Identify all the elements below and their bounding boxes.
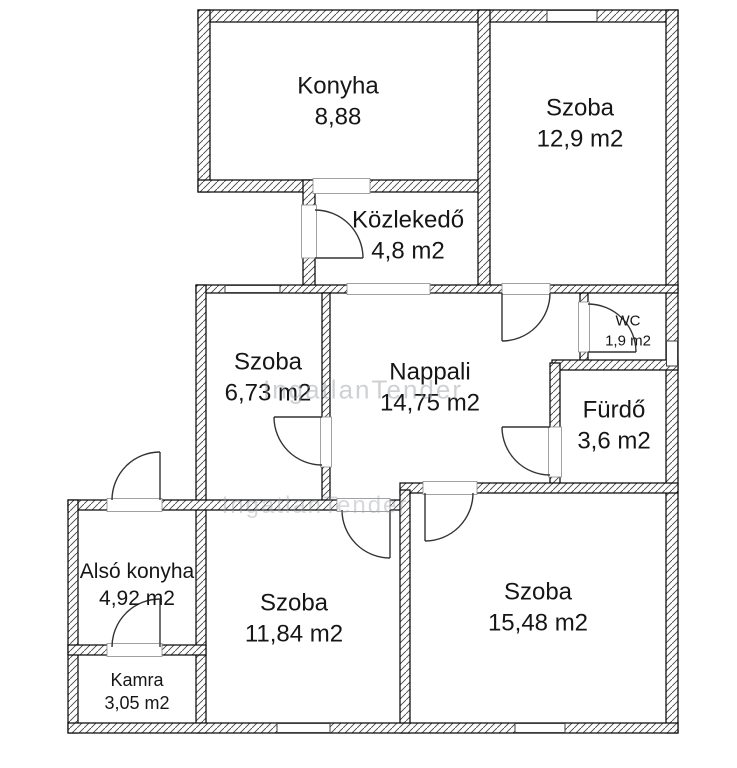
room-name: WC (605, 312, 651, 332)
room-area: 1,9 m2 (605, 331, 651, 351)
room-name: Közlekedő (352, 205, 464, 236)
opening-szoba1548-door (423, 482, 477, 495)
window-szoba1184-bottom (277, 724, 330, 733)
room-label-wc: WC 1,9 m2 (605, 312, 651, 351)
opening-kozlekedo-nappali (347, 284, 430, 295)
room-area: 3,6 m2 (577, 426, 650, 457)
wall-outer-bottom (68, 723, 678, 733)
door-arc-szoba1184 (342, 510, 390, 558)
door-arc-furdo (502, 427, 550, 475)
room-name: Szoba (225, 347, 312, 378)
room-name: Szoba (488, 577, 588, 608)
wall-szoba1184-szoba1548-divider (400, 490, 410, 733)
room-area: 6,73 m2 (225, 378, 312, 409)
window-wc-right (667, 341, 678, 366)
opening-furdo-door (549, 427, 562, 477)
wall-szoba673-nappali-divider (322, 293, 330, 508)
opening-konyha-kozlekedo (313, 179, 370, 194)
room-area: 12,9 m2 (537, 124, 624, 155)
wall-konyha-szoba129-divider (478, 10, 490, 293)
wall-outer-left-lower (68, 500, 78, 733)
room-area: 8,88 (297, 102, 378, 133)
wall-outer-top (198, 10, 678, 22)
wall-outer-left-upper (198, 10, 210, 192)
room-label-kozlekedo: Közlekedő 4,8 m2 (352, 205, 464, 266)
room-name: Alsó konyha (80, 559, 194, 586)
room-label-also-konyha: Alsó konyha 4,92 m2 (80, 559, 194, 613)
room-label-szoba-129: Szoba 12,9 m2 (537, 93, 624, 154)
room-area: 15,48 m2 (488, 608, 588, 639)
room-area: 11,84 m2 (245, 619, 343, 650)
door-arc-szoba673 (274, 417, 322, 465)
room-name: Fürdő (577, 395, 650, 426)
room-area: 4,92 m2 (80, 586, 194, 613)
room-name: Szoba (245, 588, 343, 619)
room-label-szoba-1184: Szoba 11,84 m2 (245, 588, 343, 649)
door-arc-szoba1548 (425, 493, 473, 541)
opening-szoba1184-door (337, 499, 390, 512)
door-arc-szoba129 (502, 293, 550, 341)
opening-szoba673-door (321, 417, 332, 467)
wall-outer-right (666, 10, 678, 733)
opening-wc-door (579, 302, 590, 352)
room-name: Konyha (297, 71, 378, 102)
room-name: Nappali (380, 357, 480, 388)
opening-kamra-door (107, 644, 162, 657)
room-label-furdo: Fürdő 3,6 m2 (577, 395, 650, 456)
room-label-szoba-1548: Szoba 15,48 m2 (488, 577, 588, 638)
room-area: 4,8 m2 (352, 236, 464, 267)
floor-plan: Konyha 8,88 Szoba 12,9 m2 Közlekedő 4,8 … (0, 0, 737, 768)
room-label-szoba-673: Szoba 6,73 m2 (225, 347, 312, 408)
door-arc-alsokonyha (112, 452, 160, 500)
room-name: Kamra (104, 669, 169, 692)
wall-wc-bottom (552, 360, 678, 370)
opening-kozlekedo-entrance (302, 205, 317, 258)
room-area: 3,05 m2 (104, 692, 169, 715)
room-label-nappali: Nappali 14,75 m2 (380, 357, 480, 418)
opening-szoba129-door (502, 284, 550, 295)
room-label-kamra: Kamra 3,05 m2 (104, 669, 169, 715)
window-szoba1548-bottom (515, 724, 565, 733)
room-area: 14,75 m2 (380, 388, 480, 419)
opening-alsokonyha-entrance (107, 499, 162, 512)
window-szoba673 (225, 286, 280, 293)
room-label-konyha: Konyha 8,88 (297, 71, 378, 132)
window-szoba129-top (547, 11, 597, 22)
room-name: Szoba (537, 93, 624, 124)
